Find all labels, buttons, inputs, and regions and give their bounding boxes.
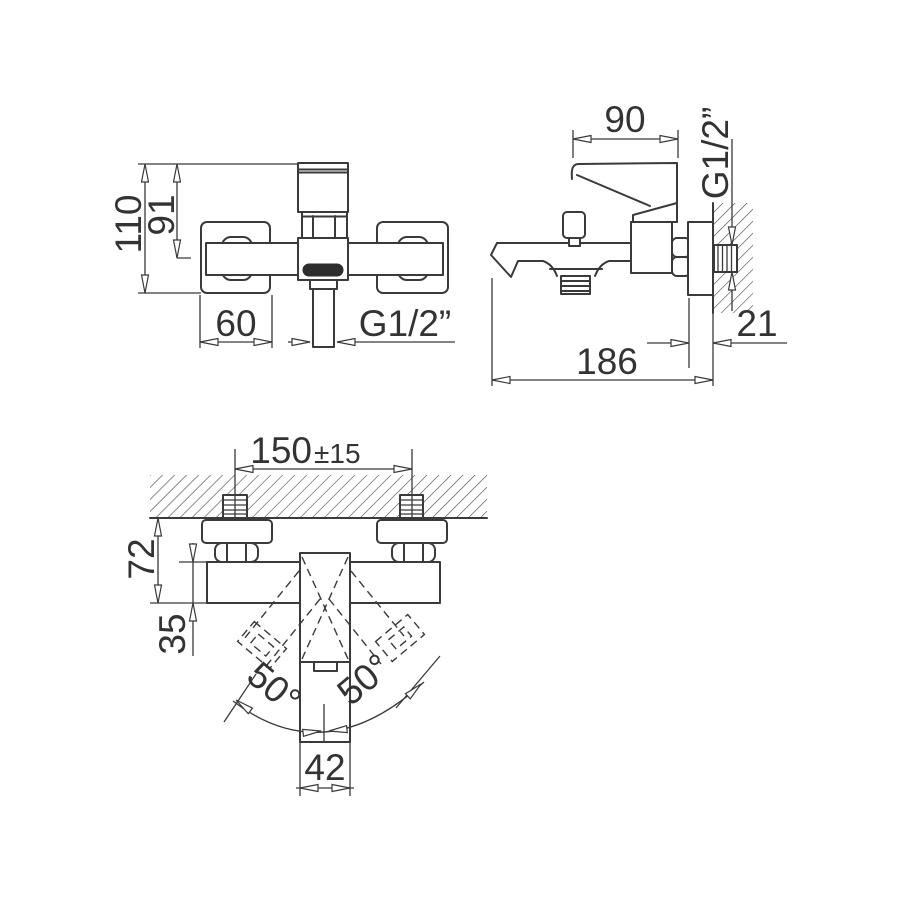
spout-tip [491,243,543,277]
spout-aerator [303,264,343,276]
outlet-flange [310,280,337,289]
installation-top-view: 150 ±15 72 35 50° 50° 42 [121,430,487,796]
dim-outlet-axis-height: 91 [141,194,182,235]
wall-hatching-top [150,475,487,518]
technical-drawing-svg: 110 91 60 G1/2” [0,0,900,900]
shower-outlet-trumpet [543,261,631,276]
left-hex-nut-top [215,543,258,562]
dim-spout-width: 42 [304,747,345,788]
handle-phantom-right [376,615,425,662]
diverter-knob [563,212,585,238]
diverter-stem [569,238,580,246]
faucet-dimension-drawing: 110 91 60 G1/2” [0,0,900,900]
left-wall-plate-top [202,520,272,543]
dim-wall-plate-depth: 21 [736,303,777,344]
right-wall-plate-top [377,520,447,543]
front-view: 110 91 60 G1/2” [108,163,455,348]
dim-shower-outlet-thread: G1/2” [359,303,452,344]
right-hex-nut-top [392,543,435,562]
dim-inlet-thread: G1/2” [695,107,736,200]
top-faucet-body [150,449,487,742]
dim-total-depth: 186 [576,341,638,382]
dim-body-depth: 35 [152,613,193,654]
dim-handle-depth: 90 [604,99,645,140]
dim-inlet-centers: 150 [250,430,312,471]
wall-plate-side [688,222,713,295]
body-side [631,222,672,273]
dim-wall-plate-width: 60 [215,303,256,344]
shower-outlet-pipe [313,289,334,347]
dim-inlet-centers-tolerance: ±15 [314,438,361,469]
dim-body-projection: 72 [121,538,162,579]
spout-column-top [300,553,350,742]
handle-side [572,163,677,222]
side-view: 90 G1/2” 21 186 [491,99,787,386]
